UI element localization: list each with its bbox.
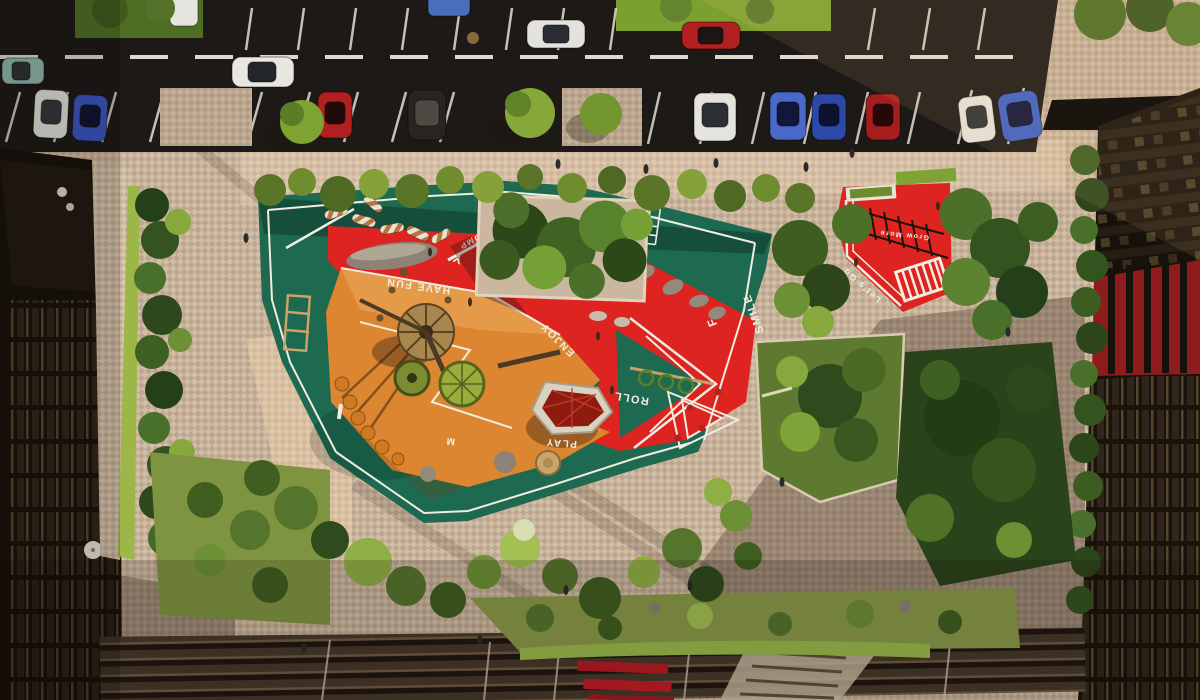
marking-letter-m: M: [445, 435, 456, 447]
marking-play: PLAY: [545, 436, 577, 449]
planting-bed-far-right: [896, 342, 1076, 586]
car: [408, 90, 446, 140]
boulder: [494, 451, 516, 473]
car: [770, 92, 806, 140]
aerial-render-image: JUMP PUMP-PUMP HAVE FUN Y ENJOY SMILE F …: [0, 0, 1200, 700]
manhole: [467, 32, 479, 44]
car: [232, 57, 294, 87]
car: [428, 0, 470, 16]
car: [527, 20, 585, 48]
scene-canvas: JUMP PUMP-PUMP HAVE FUN Y ENJOY SMILE F …: [0, 0, 1200, 700]
car: [318, 92, 352, 138]
planting-bed-right: [756, 334, 904, 502]
car: [682, 22, 740, 49]
car: [694, 93, 736, 141]
car: [812, 94, 846, 140]
